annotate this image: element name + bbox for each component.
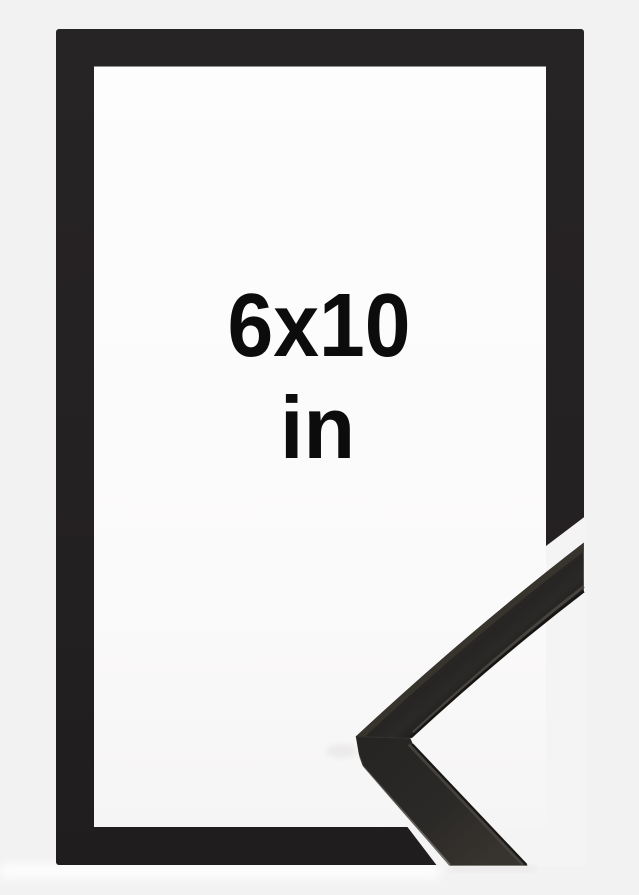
svg-text:6x10: 6x10 [228, 276, 411, 376]
svg-text:in: in [280, 378, 355, 477]
